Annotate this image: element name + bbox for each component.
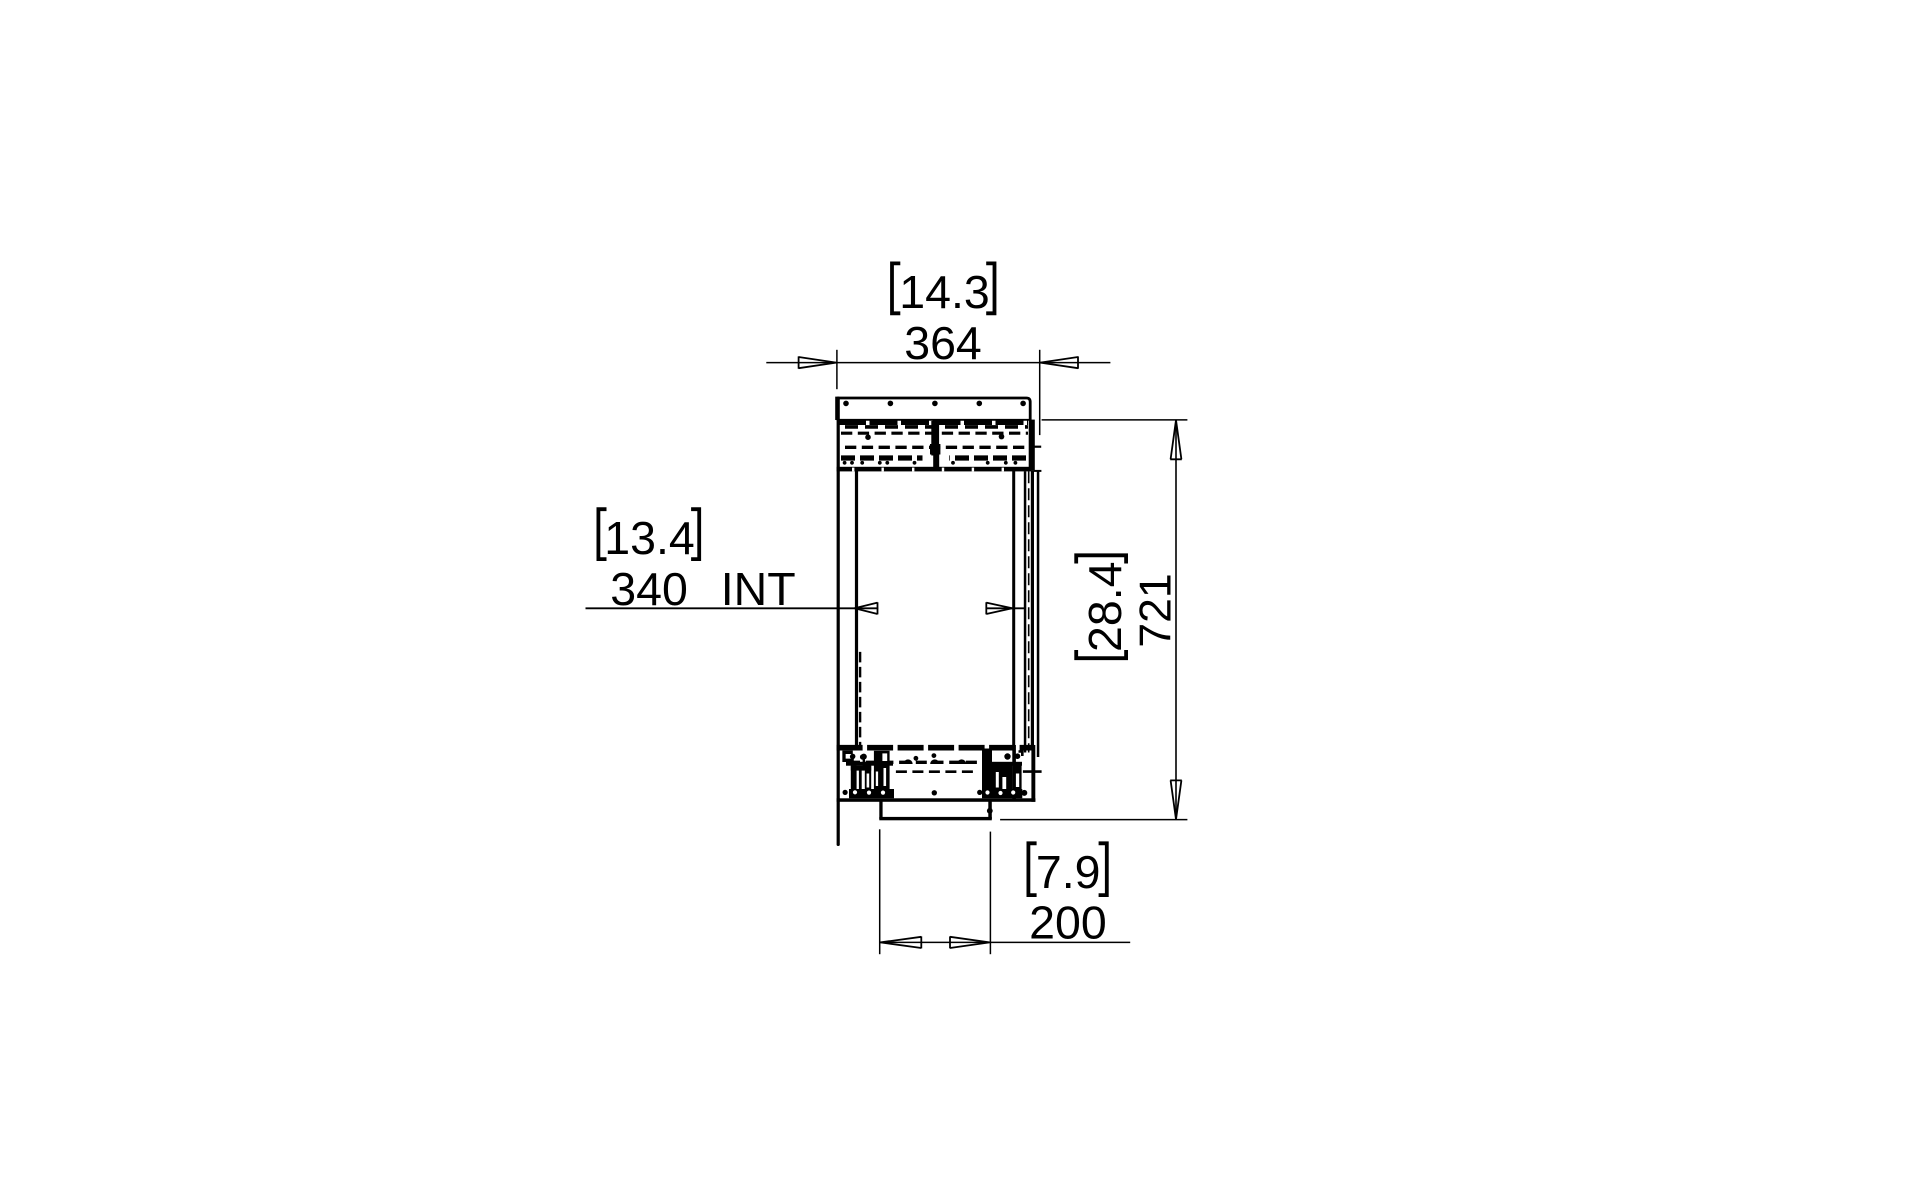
- svg-text:7.9: 7.9: [1036, 846, 1101, 898]
- svg-text:INT: INT: [721, 563, 796, 615]
- svg-text:13.4: 13.4: [604, 512, 695, 564]
- svg-text:721: 721: [1132, 573, 1181, 647]
- svg-text:364: 364: [904, 317, 982, 369]
- svg-text:14.3: 14.3: [899, 266, 990, 318]
- svg-text:340: 340: [610, 563, 688, 615]
- svg-text:28.4: 28.4: [1079, 561, 1131, 652]
- svg-text:200: 200: [1029, 897, 1107, 949]
